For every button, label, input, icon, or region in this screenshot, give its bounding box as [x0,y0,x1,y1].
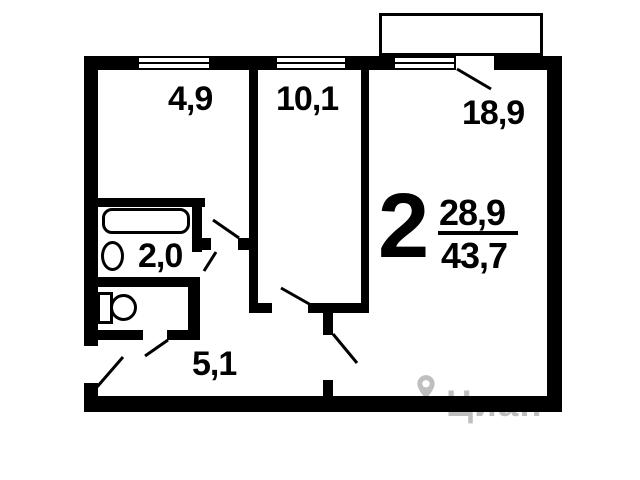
door-swing-wc [145,340,168,356]
rooms-count-label: 2 [378,180,425,272]
room-large-area-label: 18,9 [462,96,524,130]
kitchen-area-label: 4,9 [168,82,212,116]
door-swing-room-small [281,288,311,305]
door-swing-balcony [457,69,491,89]
door-swing-kitchen [213,220,239,238]
watermark: Циан [412,374,543,422]
watermark-text: Циан [446,385,543,422]
door-swing-room-large [333,334,357,363]
map-pin-icon [412,374,440,400]
living-area-label: 28,9 [439,195,505,231]
door-swings-layer [0,0,640,480]
floor-plan: 4,9 10,1 18,9 2,0 5,1 2 28,9 43,7 Циан [0,0,640,480]
door-swing-bathroom [204,252,216,271]
hallway-area-label: 5,1 [192,347,236,381]
bathroom-area-label: 2,0 [138,239,182,273]
total-area-label: 43,7 [441,238,507,274]
room-small-area-label: 10,1 [276,82,338,116]
door-swing-entrance [97,357,123,387]
